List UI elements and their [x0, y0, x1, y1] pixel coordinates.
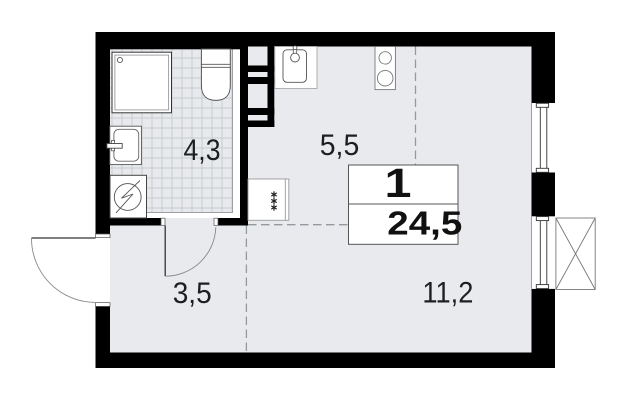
- svg-text:5,5: 5,5: [320, 129, 360, 162]
- svg-text:4,3: 4,3: [184, 134, 221, 167]
- svg-text:24,5: 24,5: [387, 204, 462, 241]
- svg-text:11,2: 11,2: [422, 276, 473, 309]
- svg-text:1: 1: [385, 160, 412, 206]
- svg-text:3,5: 3,5: [173, 277, 212, 310]
